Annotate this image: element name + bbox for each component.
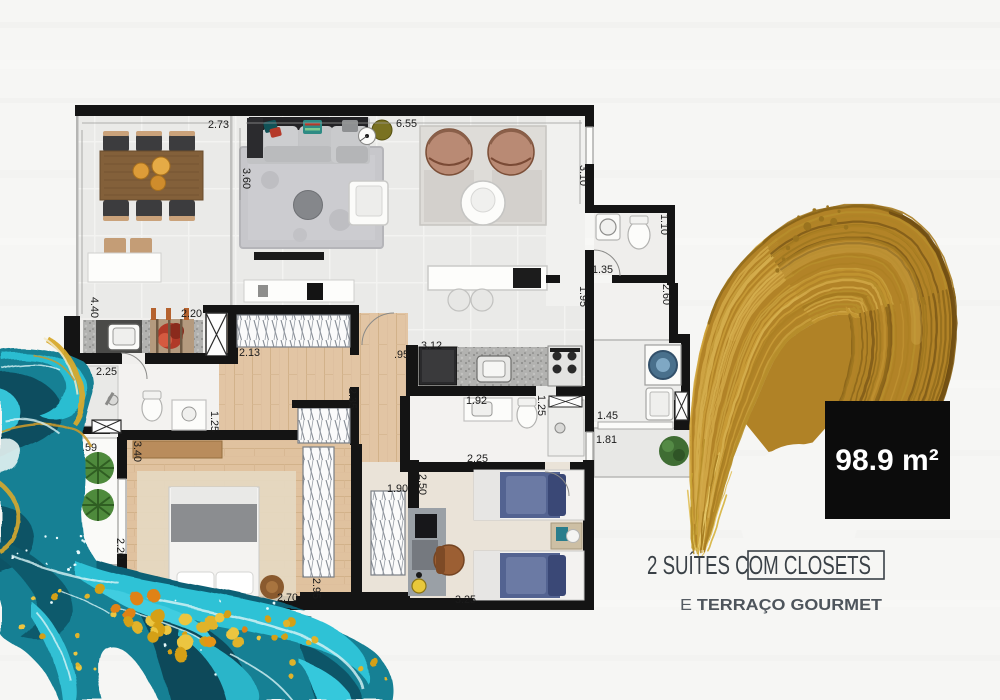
svg-text:1.95: 1.95 — [577, 286, 589, 307]
svg-text:3.12: 3.12 — [421, 340, 442, 352]
svg-text:3.40: 3.40 — [131, 441, 143, 462]
svg-text:2.35: 2.35 — [346, 388, 358, 409]
svg-text:3.60: 3.60 — [240, 168, 252, 189]
svg-text:3.10: 3.10 — [577, 165, 589, 186]
svg-text:.95: .95 — [394, 349, 409, 361]
svg-text:1.25: 1.25 — [535, 395, 547, 416]
svg-text:6.55: 6.55 — [396, 118, 417, 130]
svg-text:2.13: 2.13 — [239, 347, 260, 359]
svg-text:1.25: 1.25 — [208, 411, 220, 432]
svg-text:2.73: 2.73 — [208, 119, 229, 131]
svg-text:1.92: 1.92 — [466, 395, 487, 407]
svg-text:1.35: 1.35 — [592, 264, 613, 276]
svg-text:4.40: 4.40 — [88, 297, 100, 318]
svg-text:3.25: 3.25 — [455, 594, 476, 606]
svg-text:1.45: 1.45 — [597, 410, 618, 422]
svg-text:2.60: 2.60 — [660, 284, 672, 305]
svg-text:2.20: 2.20 — [114, 538, 126, 559]
svg-text:2.25: 2.25 — [96, 366, 117, 378]
svg-text:2.50: 2.50 — [416, 474, 428, 495]
svg-text:2 SUÍTES COM CLOSETS: 2 SUÍTES COM CLOSETS — [647, 550, 871, 580]
svg-text:1.90: 1.90 — [387, 483, 408, 495]
svg-text:2.70: 2.70 — [277, 592, 298, 604]
svg-text:1.81: 1.81 — [596, 434, 617, 446]
svg-text:98.9 m²: 98.9 m² — [835, 444, 938, 477]
svg-text:E TERRAÇO GOURMET: E TERRAÇO GOURMET — [680, 597, 883, 614]
svg-text:2.95: 2.95 — [310, 578, 322, 599]
svg-text:1.10: 1.10 — [658, 214, 670, 235]
svg-text:2.20: 2.20 — [181, 308, 202, 320]
svg-text:2.25: 2.25 — [467, 453, 488, 465]
